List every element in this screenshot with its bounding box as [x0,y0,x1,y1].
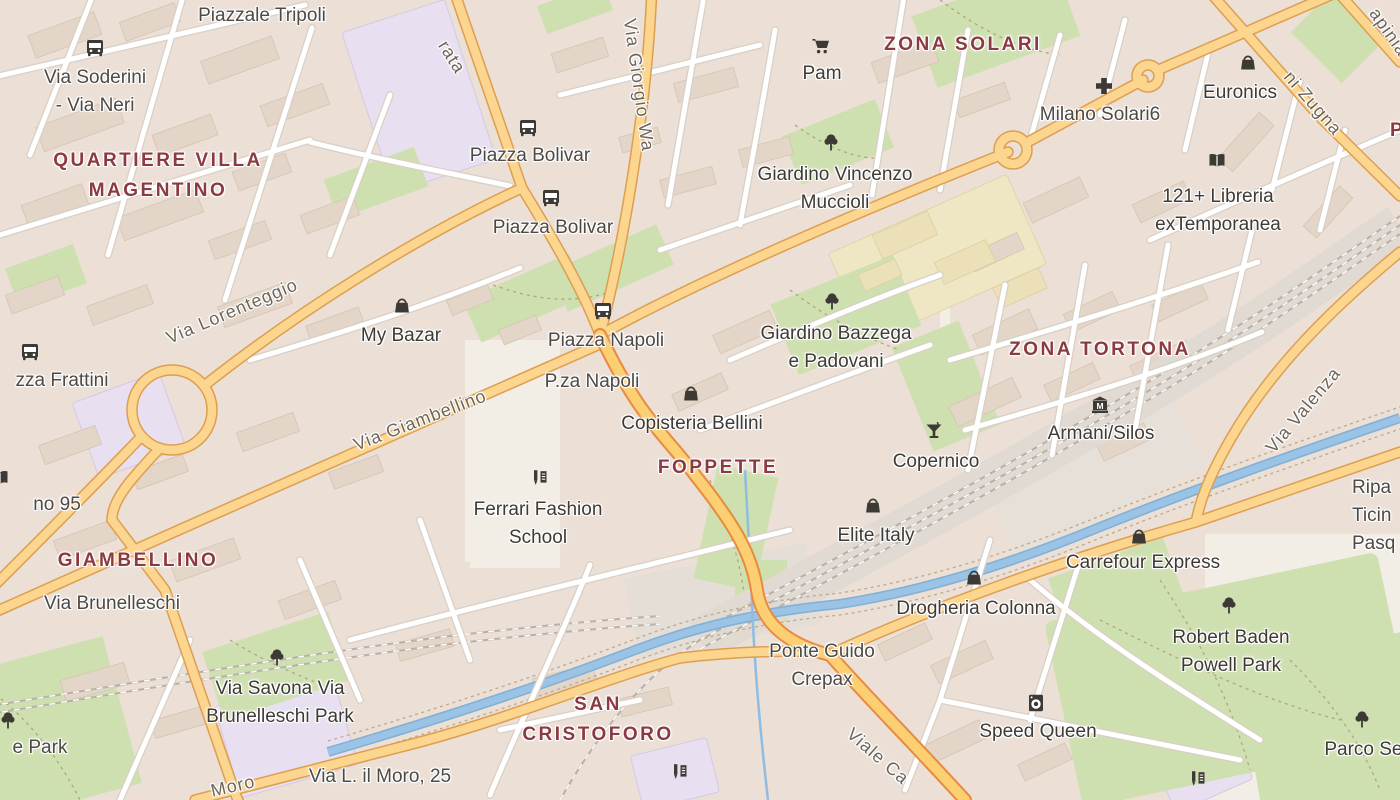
poi-label-my-bazar: My Bazar [361,322,441,350]
label-line: School [474,524,603,552]
label-line: rata [431,35,473,80]
label-line: MAGENTINO [53,176,263,206]
label-line: Euronics [1203,79,1277,107]
place-label-ripa-ticinese: RipaTicinPasq [1352,474,1395,558]
poi-label-pam: Pam [802,60,841,88]
tree-icon [0,711,18,731]
label-line: Crepax [769,666,875,694]
poi-label-libreria-extemporanea: 121+ LibreriaexTemporanea [1155,183,1281,239]
label-line: Pasq [1352,530,1395,558]
label-line: CRISTOFORO [522,720,673,750]
label-line: - Via Neri [44,92,146,120]
label-line: Powell Park [1172,652,1289,680]
bus-icon [20,342,40,362]
book-icon [0,468,10,488]
label-line: Speed Queen [979,718,1096,746]
map-canvas[interactable]: Piazzale TripoliVia Soderini- Via NeriQU… [0,0,1400,800]
label-line: P.za Napoli [545,368,640,396]
place-label-ponte-guido-crepax: Ponte GuidoCrepax [769,638,875,694]
label-line: GIAMBELLINO [58,546,219,576]
place-label-pza-napoli: P.za Napoli [545,368,640,396]
poi-label-parco-sega: Parco Sega [1324,736,1400,764]
tree-icon [1219,596,1239,616]
label-line: Via Brunelleschi [44,590,180,618]
cocktail-icon [924,421,944,441]
poi-label-copernico: Copernico [893,448,980,476]
label-line: Ponte Guido [769,638,875,666]
school-icon [1188,769,1208,789]
shopping-bag-icon [1129,527,1149,547]
label-line: FOPPETTE [658,453,778,483]
shopping-cart-icon [811,36,831,56]
place-label-no-95: no 95 [33,491,81,519]
place-label-piazzale-tripoli: Piazzale Tripoli [198,2,326,30]
label-line: ZONA TORTONA [1009,335,1191,365]
poi-label-speed-queen: Speed Queen [979,718,1096,746]
road-label-via-giambellino: Via Giambellino [349,382,490,459]
shopping-bag-icon [1238,53,1258,73]
road-label-via-lorenteggio: Via Lorenteggio [162,271,303,352]
label-line: Via Lorenteggio [162,271,303,352]
label-line: Elite Italy [837,522,914,550]
bus-icon [541,188,561,208]
place-label-milano-solari6: Milano Solari6 [1040,101,1160,129]
tree-icon [822,292,842,312]
place-label-e-park: e Park [13,734,68,762]
label-line: Via Giambellino [349,382,490,459]
label-line: Ferrari Fashion [474,496,603,524]
label-line: ZONA SOLARI [884,30,1042,60]
shopping-bag-icon [863,496,883,516]
bus-icon [85,38,105,58]
place-label-piazza-bolivar-2: Piazza Bolivar [493,214,613,242]
poi-label-drogheria-colonna: Drogheria Colonna [896,595,1056,623]
label-line: Copernico [893,448,980,476]
road-label-viale-misurata: rata [431,35,473,80]
label-line: Drogheria Colonna [896,595,1056,623]
district-label-quartiere-villa-magentino: QUARTIERE VILLAMAGENTINO [53,146,263,206]
district-label-giambellino-district: GIAMBELLINO [58,546,219,576]
poi-label-euronics: Euronics [1203,79,1277,107]
label-line: Piazza Bolivar [493,214,613,242]
label-line: SAN [522,690,673,720]
label-line: Moro [208,767,258,800]
poi-label-robert-baden-powell-park: Robert BadenPowell Park [1172,624,1289,680]
place-label-soderini-neri: Via Soderini- Via Neri [44,64,146,120]
poi-label-copisteria-bellini: Copisteria Bellini [621,410,763,438]
place-label-piazza-napoli: Piazza Napoli [548,327,664,355]
label-line: QUARTIERE VILLA [53,146,263,176]
road-label-via-lodovico-il-moro: Moro [208,767,258,800]
road-label-via-valenza: Via Valenza [1258,361,1347,460]
label-line: Copisteria Bellini [621,410,763,438]
label-line: Ticin [1352,502,1395,530]
museum-icon [1090,395,1110,415]
road-label-coni-zugna: ni Zugna [1277,64,1349,141]
label-line: Parco Sega [1324,736,1400,764]
poi-label-giardino-bazzega: Giardino Bazzegae Padovani [760,320,911,376]
label-line: Giardino Vincenzo [758,161,913,189]
poi-label-giardino-muccioli: Giardino VincenzoMuccioli [758,161,913,217]
label-line: exTemporanea [1155,211,1281,239]
label-line: Viale Ca [840,721,916,792]
label-line: Muccioli [758,189,913,217]
label-line: Armani/Silos [1048,420,1155,448]
district-label-p-partial: P [1390,116,1400,146]
label-line: apinia [1362,2,1400,62]
poi-label-savona-brunelleschi-park: Via Savona ViaBrunelleschi Park [206,675,354,731]
label-line: Piazza Bolivar [470,142,590,170]
label-line: Via Valenza [1258,361,1347,460]
label-line: zza Frattini [16,367,109,395]
shopping-bag-icon [681,384,701,404]
label-line: Milano Solari6 [1040,101,1160,129]
label-line: 121+ Libreria [1155,183,1281,211]
label-line: Via Savona Via [206,675,354,703]
label-line: My Bazar [361,322,441,350]
label-line: Piazzale Tripoli [198,2,326,30]
district-label-foppette: FOPPETTE [658,453,778,483]
tree-icon [1352,710,1372,730]
label-line: e Park [13,734,68,762]
hospital-cross-icon [1094,76,1114,96]
poi-label-armani-silos: Armani/Silos [1048,420,1155,448]
place-label-via-l-il-moro-25: Via L. il Moro, 25 [309,763,451,791]
poi-label-carrefour-express: Carrefour Express [1066,549,1220,577]
road-label-viale-cassala: Viale Ca [840,721,916,792]
label-line: Via Giorgio Wa [616,17,662,154]
school-icon [530,468,550,488]
district-label-zona-tortona: ZONA TORTONA [1009,335,1191,365]
school-icon [670,762,690,782]
label-line: Ripa [1352,474,1395,502]
place-label-via-brunelleschi: Via Brunelleschi [44,590,180,618]
shopping-bag-icon [392,296,412,316]
tree-icon [821,133,841,153]
label-line: Carrefour Express [1066,549,1220,577]
bus-icon [593,301,613,321]
shopping-bag-icon [964,568,984,588]
poi-label-elite-italy: Elite Italy [837,522,914,550]
road-label-papiniano: apinia [1362,2,1400,62]
label-line: Pam [802,60,841,88]
label-line: ni Zugna [1277,64,1349,141]
label-line: Via L. il Moro, 25 [309,763,451,791]
laundry-machine-icon [1026,693,1046,713]
place-label-piazza-frattini: zza Frattini [16,367,109,395]
book-icon [1207,151,1227,171]
district-label-san-cristoforo: SANCRISTOFORO [522,690,673,750]
label-line: e Padovani [760,348,911,376]
road-label-via-giorgio-washington: Via Giorgio Wa [616,17,662,154]
label-line: P [1390,116,1400,146]
bus-icon [518,118,538,138]
poi-label-ferrari-fashion-school: Ferrari FashionSchool [474,496,603,552]
label-line: Robert Baden [1172,624,1289,652]
district-label-zona-solari: ZONA SOLARI [884,30,1042,60]
tree-icon [267,648,287,668]
place-label-piazza-bolivar-1: Piazza Bolivar [470,142,590,170]
label-line: Via Soderini [44,64,146,92]
label-line: Giardino Bazzega [760,320,911,348]
label-line: Piazza Napoli [548,327,664,355]
map-labels-layer: Piazzale TripoliVia Soderini- Via NeriQU… [0,0,1400,800]
label-line: no 95 [33,491,81,519]
label-line: Brunelleschi Park [206,703,354,731]
